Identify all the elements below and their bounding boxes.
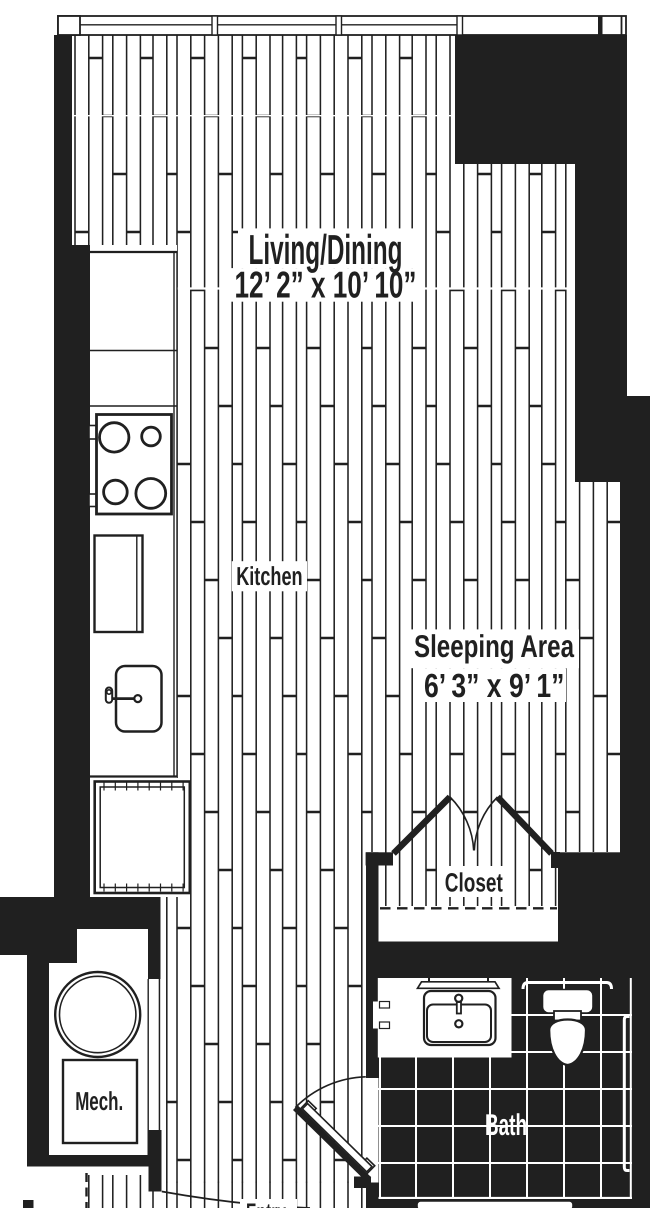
svg-text:6’ 3” x 9’ 1”: 6’ 3” x 9’ 1” xyxy=(424,668,565,705)
svg-text:Entry: Entry xyxy=(246,1199,286,1208)
svg-text:Closet: Closet xyxy=(445,868,503,898)
svg-text:Mech.: Mech. xyxy=(75,1086,123,1116)
svg-text:Bath: Bath xyxy=(485,1109,527,1142)
svg-text:Kitchen: Kitchen xyxy=(236,561,302,591)
svg-text:Sleeping Area: Sleeping Area xyxy=(414,628,574,664)
svg-text:12’ 2” x 10’ 10”: 12’ 2” x 10’ 10” xyxy=(235,264,417,306)
